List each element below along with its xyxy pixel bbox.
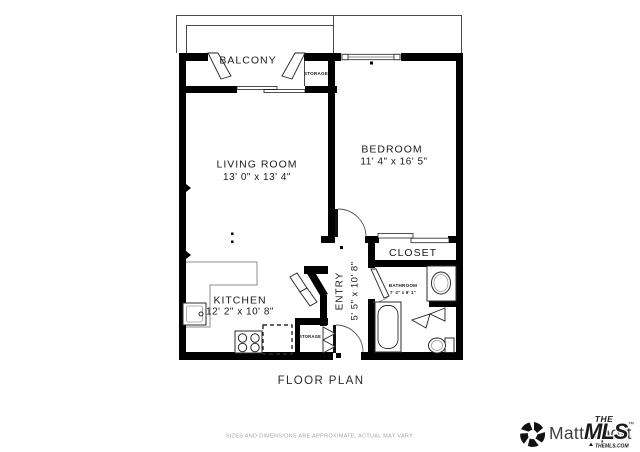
water-closet-bifold-doors bbox=[412, 308, 445, 328]
bathtub-icon bbox=[375, 302, 401, 352]
entry-storage-label: STORAGE bbox=[299, 334, 321, 339]
closet-label: CLOSET bbox=[389, 247, 437, 259]
entry-front-door bbox=[333, 325, 363, 353]
bathroom-dimensions: 7' 4" x 9' 1" bbox=[390, 290, 416, 295]
floor-plan-image: BALCONY STORAGE LIVING ROOM 13' 0" x 13'… bbox=[0, 0, 640, 452]
refrigerator-dashed-outline bbox=[263, 325, 292, 354]
mls-site-text: THEMLS.COM bbox=[595, 444, 629, 450]
entry-dimensions: 5' 5" x 10' 8" bbox=[349, 261, 360, 320]
bathroom-sink-icon bbox=[427, 266, 456, 301]
living-room-dimensions: 13' 0" x 13' 4" bbox=[223, 172, 291, 183]
floor-plan-caption: FLOOR PLAN bbox=[179, 375, 463, 387]
the-mls-logo: THE MLS ™ THEMLS.COM bbox=[582, 409, 640, 451]
kitchen-sink-icon bbox=[183, 303, 206, 325]
mls-trademark: ™ bbox=[628, 421, 634, 428]
toilet-icon bbox=[429, 338, 455, 353]
mls-name-text: MLS bbox=[584, 419, 629, 444]
bedroom-door bbox=[335, 209, 366, 237]
bathroom-door bbox=[371, 269, 389, 302]
kitchen-dimensions: 12' 2" x 10' 8" bbox=[206, 307, 274, 318]
footer-logos: Matterport THE MLS ™ THEMLS.COM bbox=[512, 406, 640, 452]
bedroom-label: BEDROOM bbox=[361, 144, 422, 156]
entry-label: ENTRY bbox=[335, 272, 346, 311]
balcony-storage-label: STORAGE bbox=[304, 71, 328, 76]
bathroom-label: BATHROOM bbox=[389, 283, 417, 288]
stove-icon bbox=[235, 331, 262, 353]
living-room-label: LIVING ROOM bbox=[216, 159, 297, 171]
balcony-label: BALCONY bbox=[219, 55, 276, 67]
kitchen-label: KITCHEN bbox=[213, 295, 266, 307]
matterport-icon bbox=[518, 420, 547, 449]
bedroom-dimensions: 11' 4" x 16' 5" bbox=[360, 157, 427, 168]
